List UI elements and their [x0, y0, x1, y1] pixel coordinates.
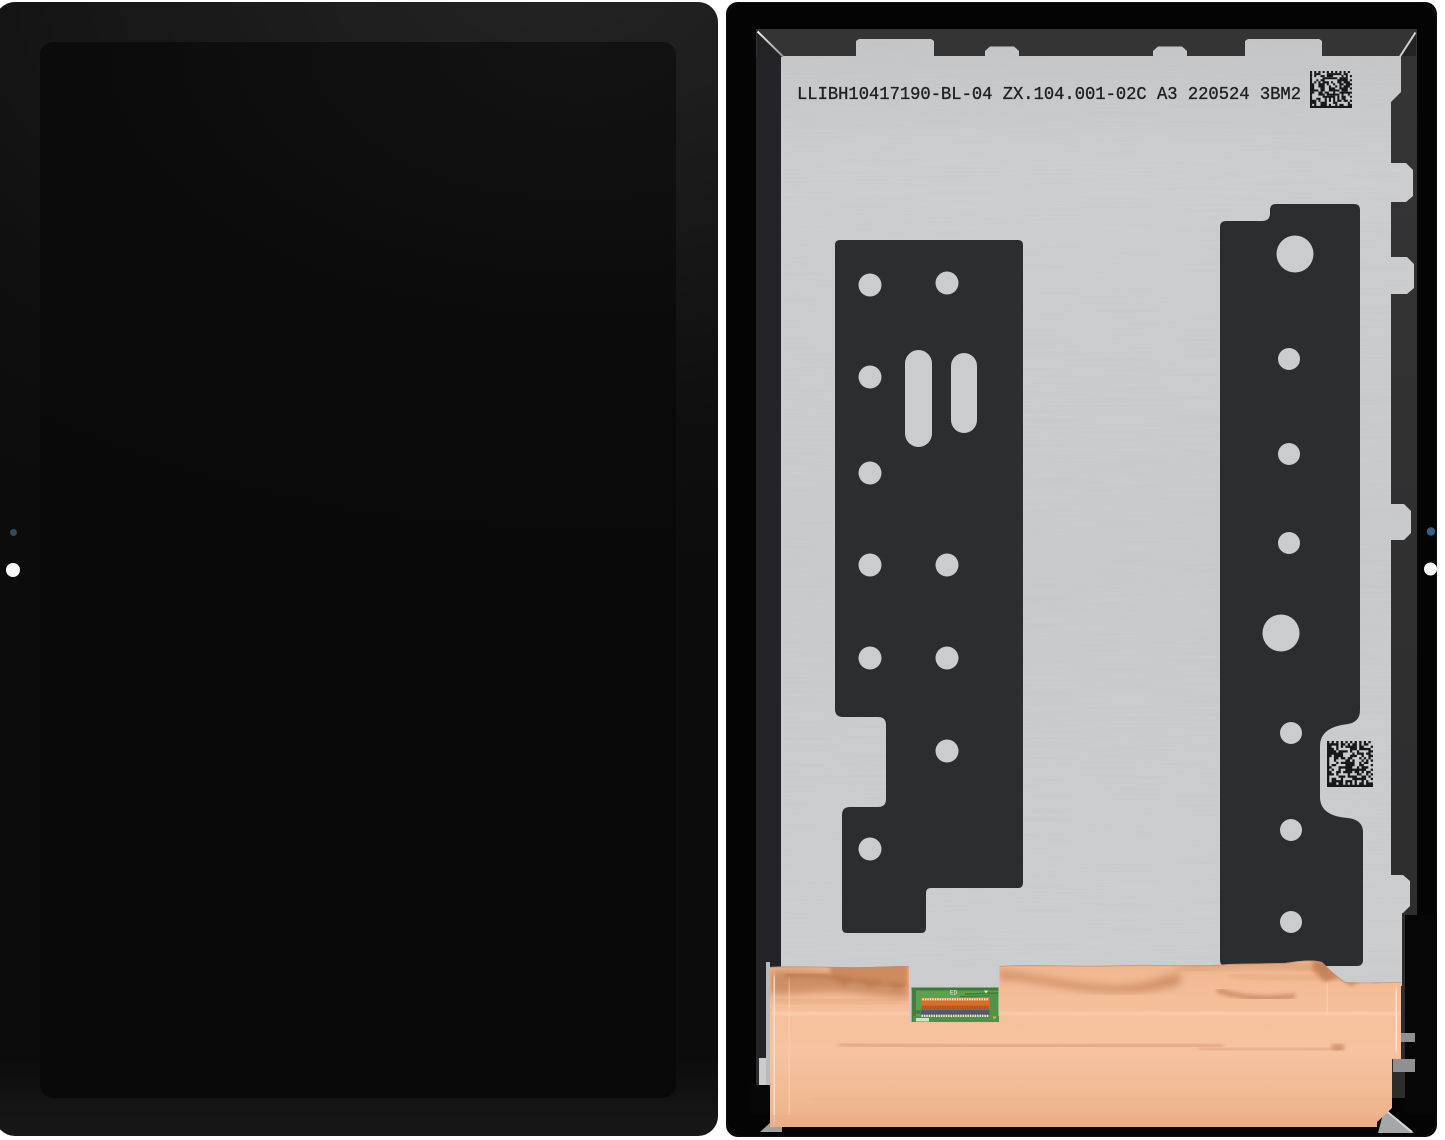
svg-text:LLIBH10417190-BL-04 ZX.104.001: LLIBH10417190-BL-04 ZX.104.001-02C A3 22… — [797, 84, 1301, 105]
svg-text:ED: ED — [950, 990, 958, 997]
